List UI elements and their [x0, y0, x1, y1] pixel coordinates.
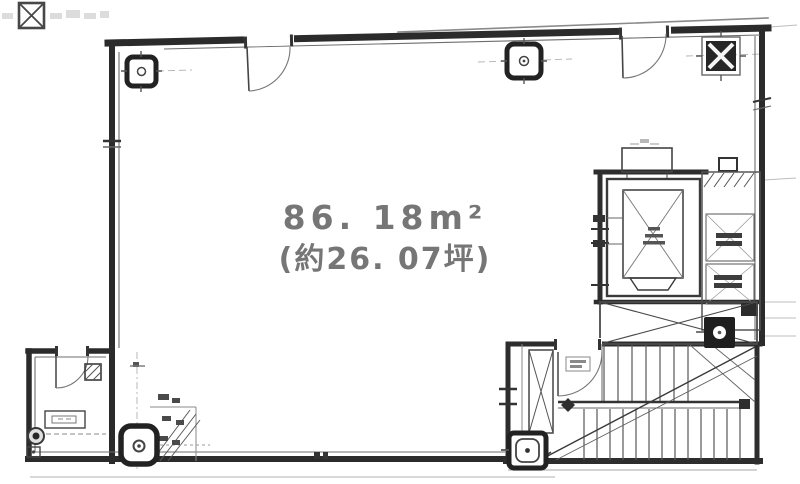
door-top-left — [244, 33, 294, 91]
door-top-right — [619, 24, 671, 78]
column-top-left — [121, 51, 162, 92]
corner-hatch-square — [19, 3, 44, 28]
column-top-middle — [501, 38, 547, 84]
entrance-text-marks — [158, 394, 184, 445]
floorplan-canvas: 86. 18m² (約26. 07坪) — [0, 0, 800, 484]
stair-treads-upper — [604, 345, 688, 401]
elevator-text-marks — [643, 227, 665, 245]
staircase — [522, 338, 757, 463]
column-entrance — [121, 426, 157, 464]
stair-treads-lower — [584, 409, 740, 460]
area-label: 86. 18m² (約26. 07坪) — [210, 196, 560, 279]
column-top-right — [696, 31, 746, 81]
lobby-wall-box — [719, 158, 737, 171]
area-tsubo-text: (約26. 07坪) — [210, 240, 560, 280]
column-bottom-middle — [501, 433, 546, 468]
area-sqm-text: 86. 18m² — [210, 196, 560, 240]
